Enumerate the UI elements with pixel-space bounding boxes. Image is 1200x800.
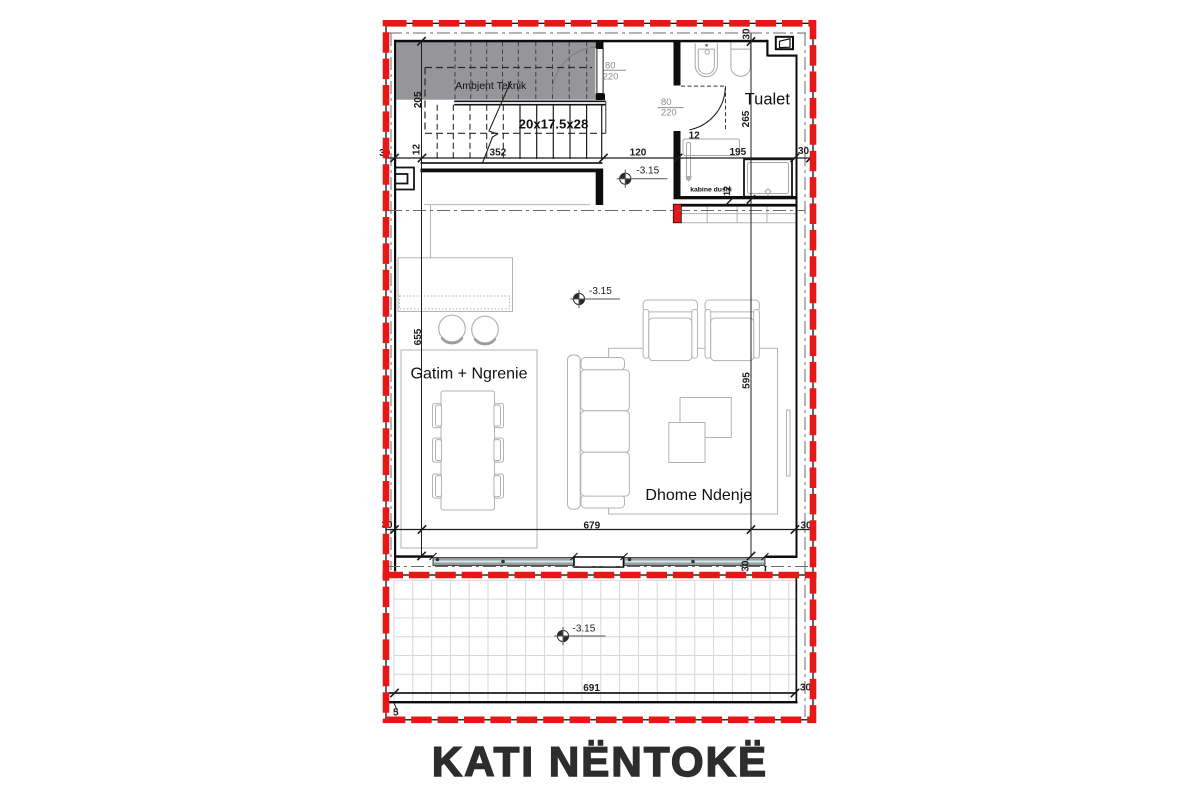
svg-text:30: 30: [741, 560, 752, 572]
svg-text:220: 220: [603, 71, 619, 82]
svg-text:Ambjent Teknik: Ambjent Teknik: [455, 80, 527, 92]
svg-text:205: 205: [413, 91, 424, 108]
svg-text:679: 679: [583, 520, 600, 531]
svg-text:-3.15: -3.15: [573, 624, 596, 635]
svg-text:12: 12: [689, 131, 701, 142]
svg-text:Dhome Ndenje: Dhome Ndenje: [645, 487, 752, 504]
svg-text:220: 220: [661, 108, 677, 119]
svg-text:120: 120: [630, 148, 647, 159]
svg-text:-3.15: -3.15: [636, 166, 659, 177]
svg-text:kabine dushi: kabine dushi: [690, 186, 732, 193]
svg-text:595: 595: [742, 372, 753, 389]
svg-text:12: 12: [412, 144, 423, 156]
svg-text:195: 195: [729, 147, 746, 158]
svg-text:-3.15: -3.15: [589, 286, 612, 297]
svg-text:30: 30: [742, 28, 753, 40]
svg-text:Gatim + Ngrenie: Gatim + Ngrenie: [411, 366, 528, 383]
svg-text:Tualet: Tualet: [745, 90, 791, 108]
svg-text:352: 352: [490, 148, 507, 159]
svg-text:30: 30: [798, 146, 810, 157]
svg-text:691: 691: [583, 683, 600, 694]
svg-text:20x17.5x28: 20x17.5x28: [519, 117, 589, 132]
svg-text:655: 655: [413, 328, 424, 345]
svg-text:KATI NËNTOKË: KATI NËNTOKË: [432, 738, 768, 785]
svg-text:265: 265: [741, 110, 752, 127]
